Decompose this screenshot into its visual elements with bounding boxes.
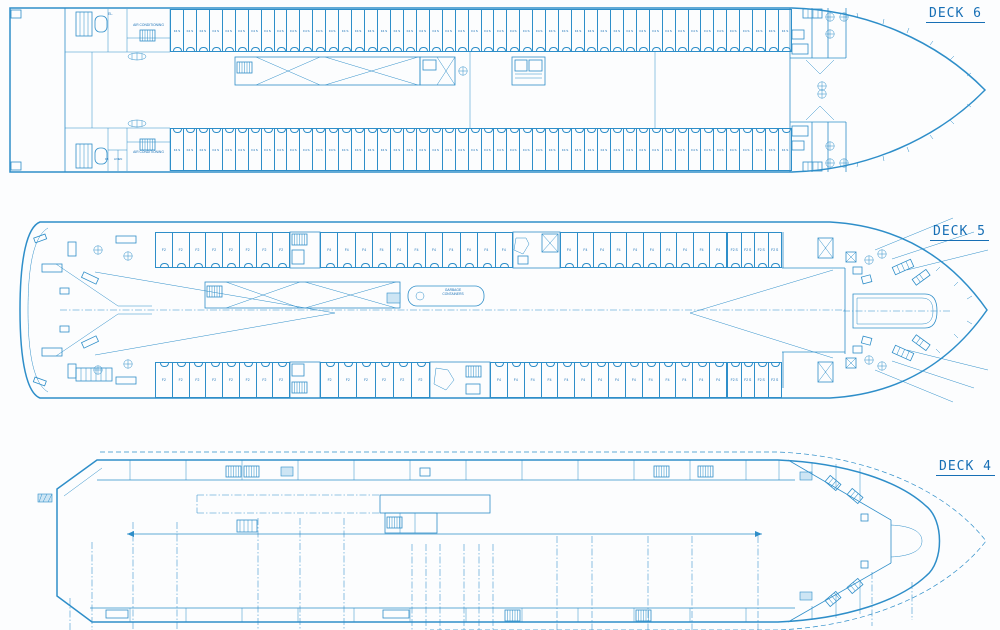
equipment-box-icon [226, 466, 241, 477]
equipment-box-icon [654, 466, 669, 477]
deck4-side-casing-top [97, 460, 812, 480]
equipment-box-icon [244, 466, 259, 477]
deck4-centerline [127, 531, 762, 537]
ship-deck-plans: DECK 6 F4 SF4 SF4 SF4 SF4 SF4 SF4 SF4 SF… [0, 0, 1000, 630]
deck4-side-casing-bottom [90, 592, 812, 622]
deck4-casing-block [197, 495, 490, 533]
deck-4-drawing [0, 430, 1000, 630]
deck-4-label: DECK 4 [936, 459, 995, 476]
deck4-hull-outline [57, 452, 986, 630]
stairs-icon [387, 517, 402, 528]
deck-4-plan: DECK 4 [0, 0, 1000, 630]
deck4-frame-lines [70, 518, 912, 630]
equipment-box-icon [636, 610, 651, 621]
equipment-box-icon [698, 466, 713, 477]
deck4-stern-detail [38, 468, 102, 502]
equipment-box-icon [505, 610, 520, 621]
